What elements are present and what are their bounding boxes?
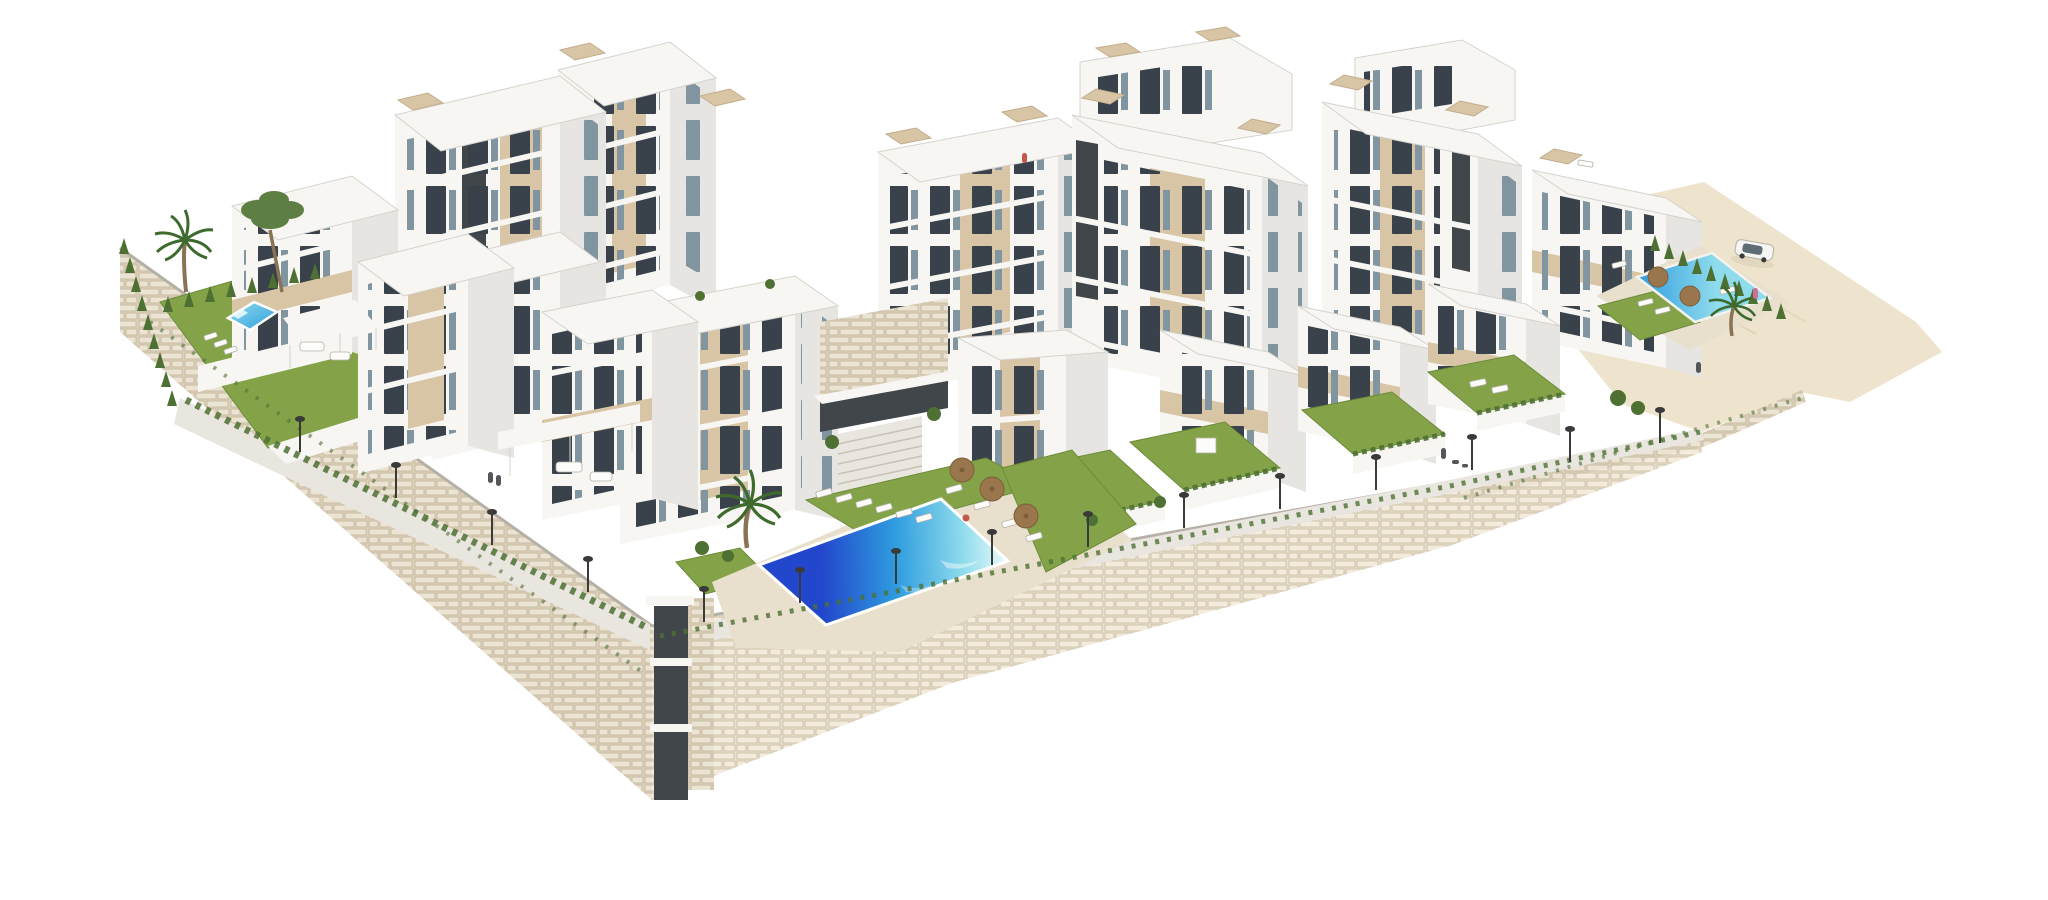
shaft-cap [646, 596, 694, 605]
architectural-render: Aerial 3D architectural render of a mode… [0, 0, 2048, 900]
outdoor-sofa [590, 472, 612, 481]
shrub [1154, 496, 1166, 508]
pedestrian-figure [496, 475, 501, 486]
poolside-figure [1753, 288, 1758, 299]
dog-walker-figure [1441, 448, 1446, 459]
roof-lounger [1578, 160, 1594, 168]
shrub [695, 541, 709, 555]
outdoor-sofa [330, 352, 350, 360]
shrub [1631, 401, 1645, 415]
rooftop-figure [1022, 153, 1027, 163]
garden-gazebo [1196, 438, 1216, 453]
swimmer-figure [963, 515, 970, 522]
shaft-slab [650, 658, 692, 666]
lift-shaft-glazing [654, 606, 688, 800]
roof-plant [695, 291, 705, 301]
outdoor-sofa [300, 342, 324, 351]
shrub [1610, 390, 1626, 406]
straw-parasol [1680, 286, 1700, 306]
straw-parasol [1648, 267, 1668, 287]
dog [1462, 464, 1468, 468]
external-stair-lift-shaft [646, 596, 714, 800]
planter-shrub [825, 435, 839, 449]
front-villa-second [358, 234, 514, 474]
pedestrian-figure [1696, 362, 1701, 373]
shrub [722, 550, 734, 562]
shaft-slab [650, 724, 692, 732]
render-canvas: Aerial 3D architectural render of a mode… [0, 0, 2048, 900]
planter-shrub [927, 407, 941, 421]
pedestrian-figure [488, 472, 493, 483]
roof-plant [765, 279, 775, 289]
dog [1452, 460, 1459, 464]
outdoor-sofa [556, 462, 582, 472]
